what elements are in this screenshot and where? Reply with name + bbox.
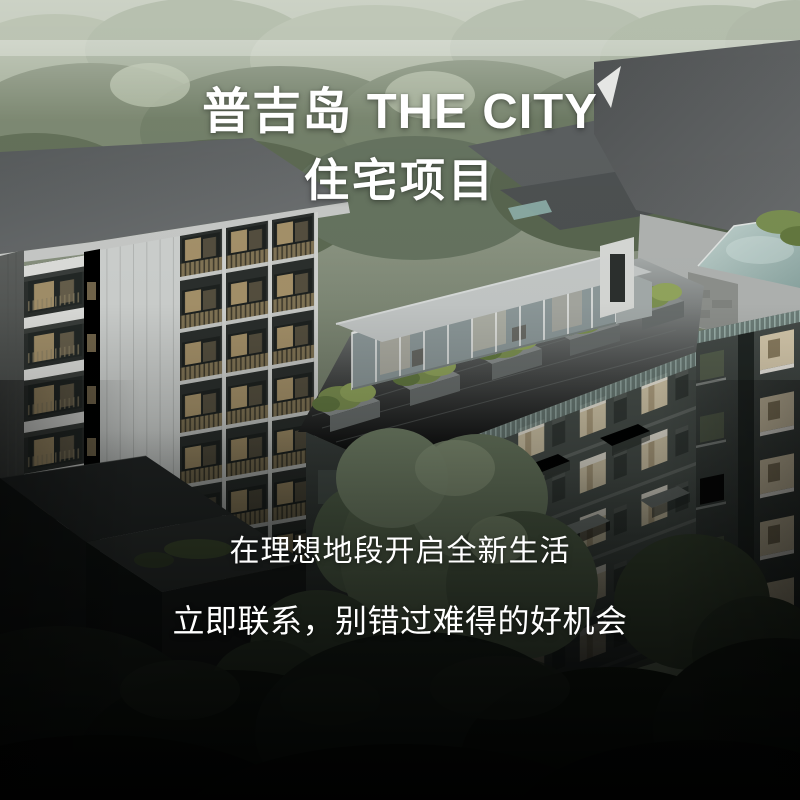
aerial-building-render [0, 0, 800, 800]
vignette-overlay [0, 0, 800, 800]
real-estate-poster: 普吉岛 THE CITY 住宅项目 在理想地段开启全新生活 立即联系，别错过难得… [0, 0, 800, 800]
